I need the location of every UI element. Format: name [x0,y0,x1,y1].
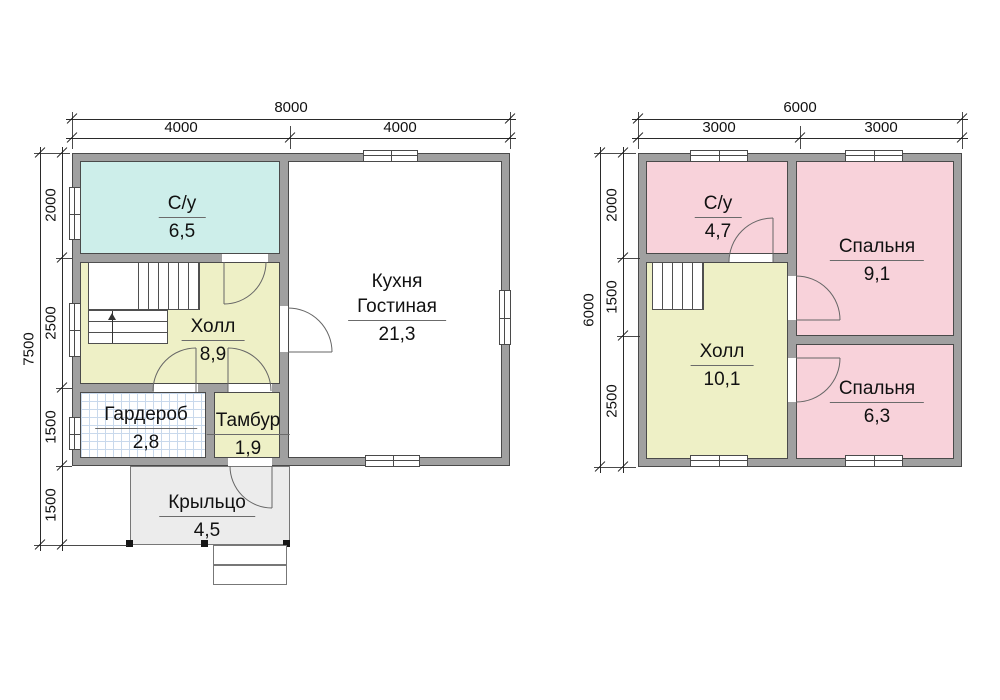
window-hall2-bottom [690,455,748,467]
room-label-wc1: С/у 6,5 [159,191,206,244]
window-wc1-left [69,187,81,240]
window-wardrobe-left [69,417,81,450]
room-label-wc2: С/у 4,7 [695,191,742,244]
door-opening-kitchen [280,306,288,352]
door-opening-wardrobe [154,384,198,392]
dim-label-total-width-f1: 8000 [274,99,307,116]
room-label-kitchen: Кухня Гостиная 21,3 [348,269,446,347]
room-label-wardrobe: Гардероб 2,8 [95,402,197,455]
window-wc2-top [690,150,748,162]
dim-label-width-seg: 4000 [164,119,197,136]
dim-label-height-seg: 2000 [604,188,621,221]
porch-step [213,565,287,585]
dim-extension [34,545,128,546]
window-bedroom2-bottom [845,455,903,467]
dim-label-total-width-f2: 6000 [783,99,816,116]
window-bedroom1-top [845,150,903,162]
floor2-stairs [652,262,704,310]
room-label-bedroom2: Спальня 6,3 [830,376,924,429]
dim-label-height-seg: 1500 [43,488,60,521]
room-label-porch: Крыльцо 4,5 [159,490,255,543]
dim-line [66,119,516,120]
door-opening-tambour-hall [228,384,272,392]
window-kitchen-top [363,150,418,162]
window-hall1-left [69,303,81,357]
floor1-stairs-lower-run [88,310,168,344]
dim-label-height-seg: 2500 [43,306,60,339]
dim-line [623,147,624,473]
floor-plan-canvas: 8000 4000 4000 7500 2000 2500 1500 1500 … [0,0,1000,700]
window-kitchen-right [499,290,511,345]
dim-label-height-seg: 2500 [604,384,621,417]
dim-label-height-seg: 1500 [604,280,621,313]
dim-label-width-seg: 3000 [864,119,897,136]
floor1-stairs-upper-run [88,262,200,310]
door-opening-wc2 [729,254,773,262]
dim-extension [594,467,636,468]
room-label-tambour: Тамбур 1,9 [207,408,290,461]
door-opening-bedroom2 [788,358,796,402]
dim-line [66,138,516,139]
dim-line [600,147,601,473]
dim-line [40,147,41,551]
dim-line [62,147,63,551]
door-opening-wc1 [222,254,268,262]
dim-label-total-height-f2: 6000 [581,293,598,326]
dim-extension [594,153,636,154]
dim-line [632,119,968,120]
room-label-bedroom1: Спальня 9,1 [830,234,924,287]
dim-label-height-seg: 1500 [43,410,60,443]
dim-label-height-seg: 2000 [43,188,60,221]
door-opening-bedroom1 [788,276,796,320]
dim-label-width-seg: 4000 [383,119,416,136]
dim-label-width-seg: 3000 [702,119,735,136]
dim-label-total-height-f1: 7500 [21,332,38,365]
window-kitchen-bottom [365,455,420,467]
room-label-hall1: Холл 8,9 [182,314,245,367]
stairs-direction-arrow [108,313,116,320]
room-label-hall2: Холл 10,1 [691,339,754,392]
porch-step [213,545,287,565]
